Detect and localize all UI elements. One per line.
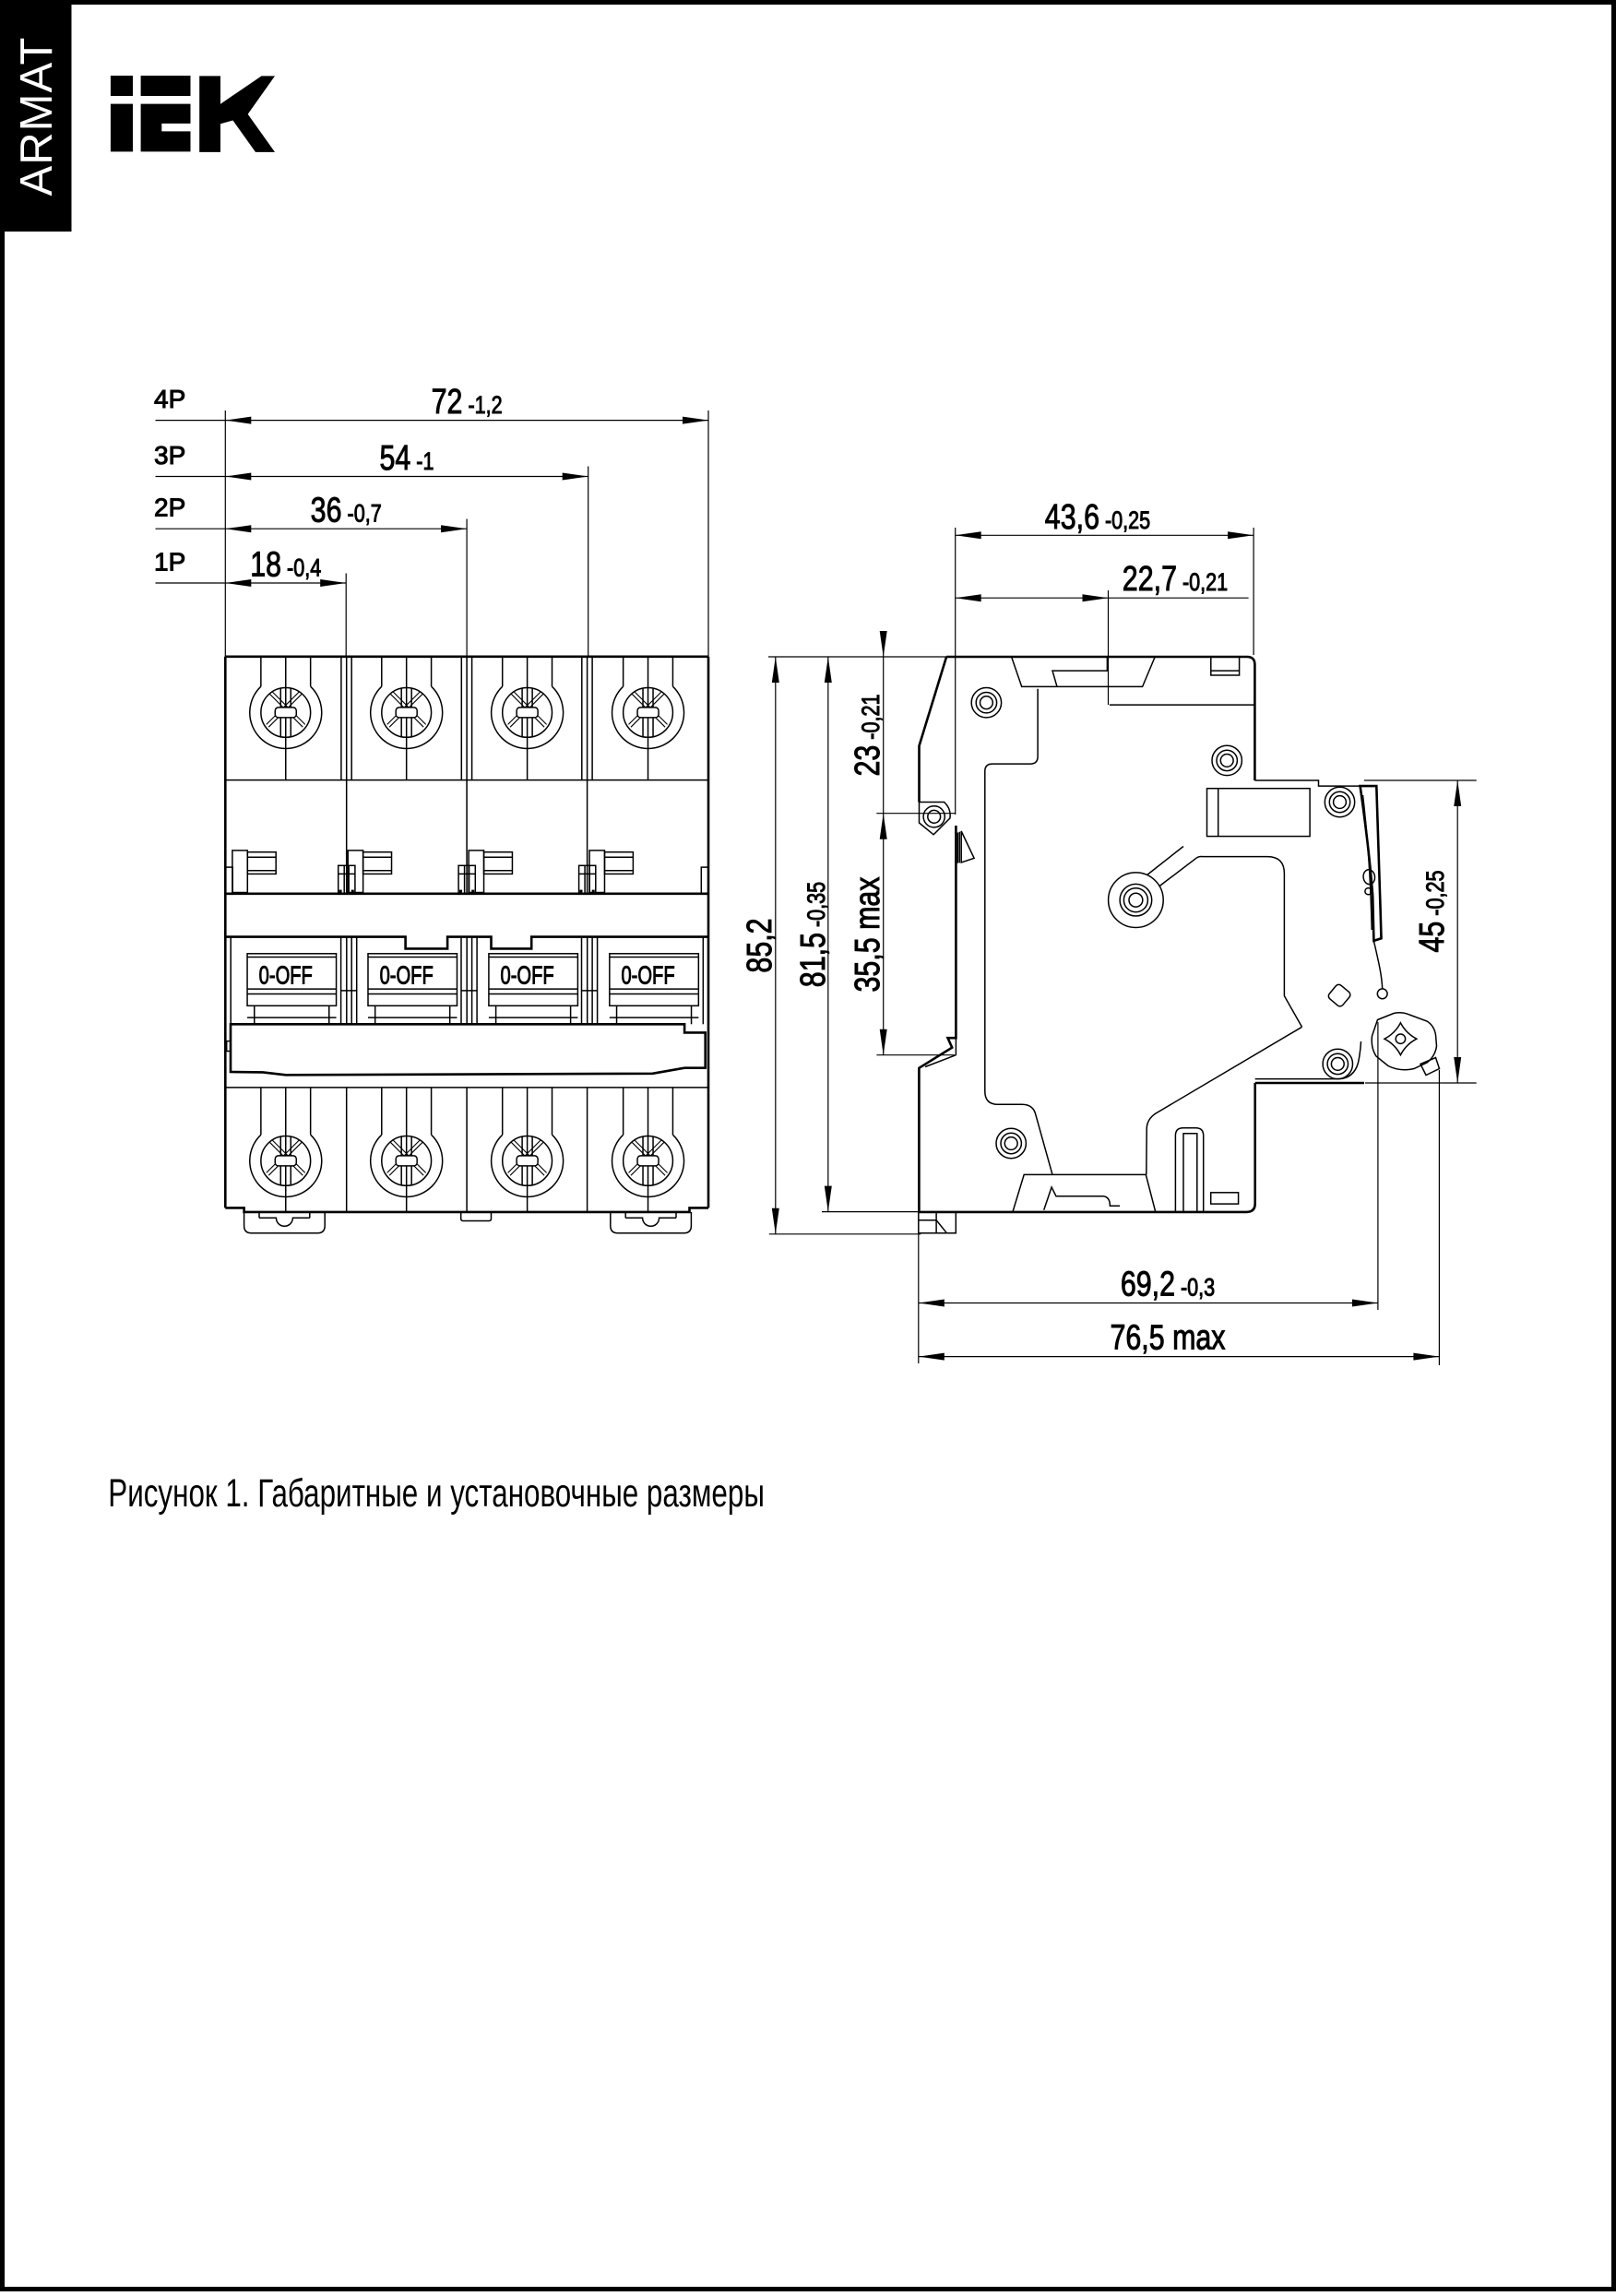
svg-text:0-OFF: 0-OFF — [501, 961, 554, 990]
svg-text:0-OFF: 0-OFF — [621, 961, 674, 990]
svg-text:0-OFF: 0-OFF — [259, 961, 313, 990]
svg-text:2P: 2P — [154, 494, 185, 522]
svg-text:85,2: 85,2 — [741, 918, 779, 972]
svg-text:1P: 1P — [154, 548, 185, 577]
svg-text:ARMAT: ARMAT — [12, 37, 62, 196]
svg-text:35,5 max: 35,5 max — [849, 876, 887, 992]
svg-text:76,5 max: 76,5 max — [1110, 1318, 1225, 1357]
svg-text:0-OFF: 0-OFF — [380, 961, 434, 990]
svg-text:Рисунок 1. Габаритные и устано: Рисунок 1. Габаритные и установочные раз… — [108, 1470, 765, 1515]
svg-text:4P: 4P — [154, 385, 185, 413]
svg-text:3P: 3P — [154, 441, 185, 470]
